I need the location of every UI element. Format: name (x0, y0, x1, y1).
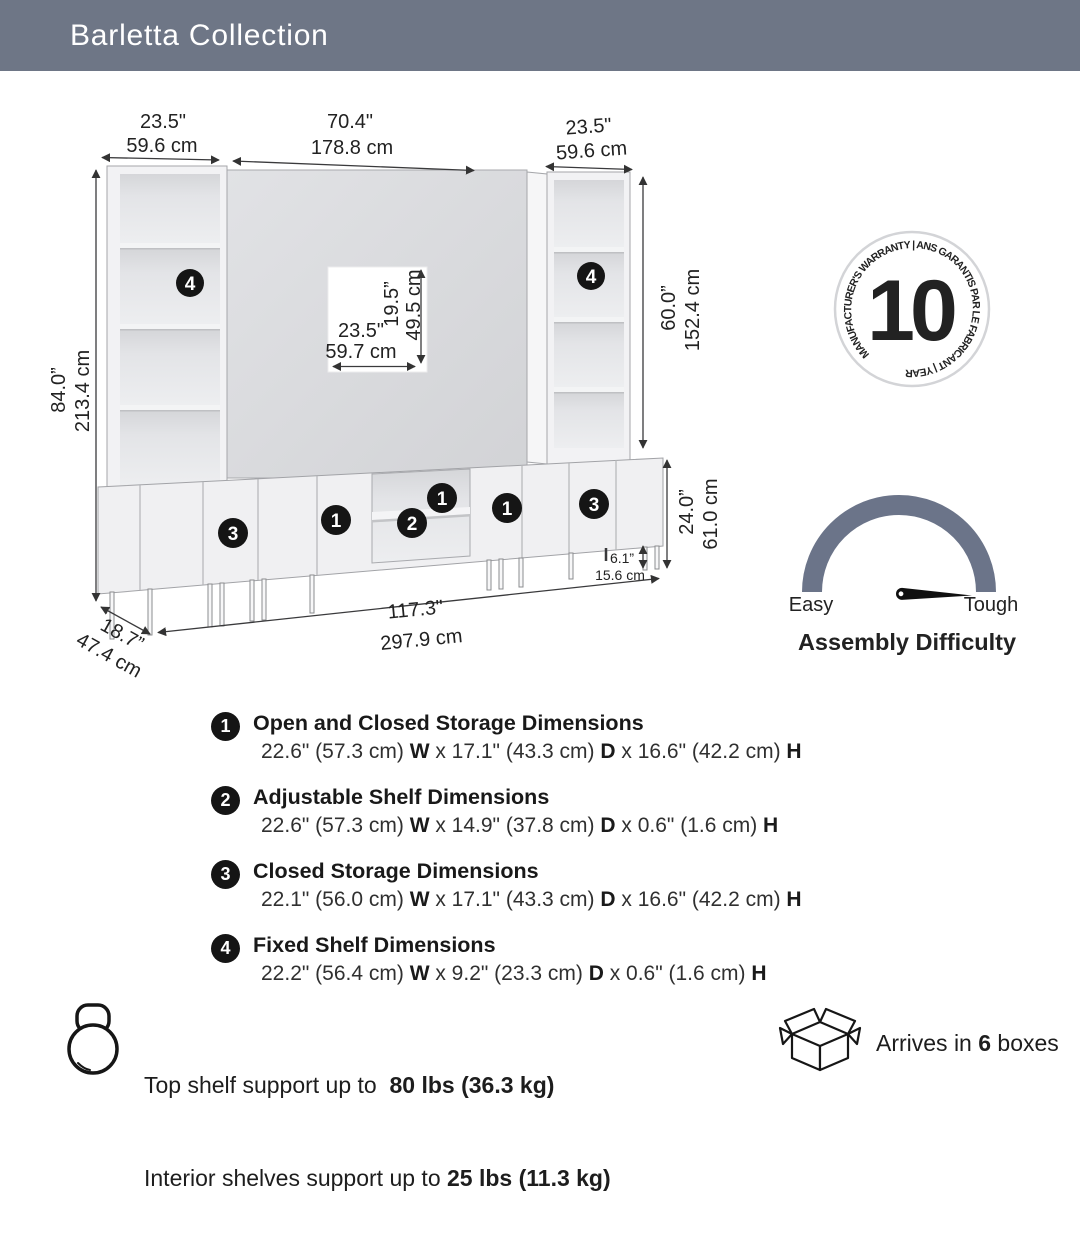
callout-badge-2-center: 2 (397, 508, 427, 538)
list-item: 1 Open and Closed Storage Dimensions 22.… (211, 710, 931, 765)
assembly-gauge: Easy Tough Assembly Difficulty (789, 505, 1018, 655)
callout-badge-4-left: 4 (176, 269, 204, 297)
warranty-years: 10 (867, 263, 955, 359)
dim-left-width-cm: 59.6 cm (126, 135, 197, 157)
svg-text:2: 2 (407, 514, 418, 535)
spec-list: 1 Open and Closed Storage Dimensions 22.… (211, 710, 931, 1006)
list-item: 4 Fixed Shelf Dimensions 22.2" (56.4 cm)… (211, 932, 931, 987)
dim-left-width-in: 23.5" (140, 111, 186, 133)
right-tower (527, 172, 630, 464)
list-item: 2 Adjustable Shelf Dimensions 22.6" (57.… (211, 784, 931, 839)
spec-badge-1: 1 (211, 712, 240, 741)
dim-total-width-cm: 297.9 cm (379, 625, 463, 655)
callout-badge-3-right: 3 (579, 489, 609, 519)
dim-tv-width-cm: 59.7 cm (325, 341, 396, 363)
spec-detail: 22.6" (57.3 cm) W x 17.1" (43.3 cm) D x … (253, 738, 802, 765)
svg-text:4: 4 (586, 267, 597, 288)
kettlebell-icon (60, 1001, 126, 1256)
box-icon (778, 1004, 862, 1077)
list-item: 3 Closed Storage Dimensions 22.1" (56.0 … (211, 858, 931, 913)
spec-title: Closed Storage Dimensions (253, 858, 802, 884)
callout-badge-1-right: 1 (492, 493, 522, 523)
callout-badge-1-left: 1 (321, 505, 351, 535)
gauge-arc (812, 505, 986, 592)
dim-console-height-cm: 61.0 cm (700, 478, 722, 549)
dim-total-height-cm: 213.4 cm (72, 350, 94, 432)
page-title: Barletta Collection (70, 0, 329, 71)
spec-title: Fixed Shelf Dimensions (253, 932, 767, 958)
dim-center-width-cm: 178.8 cm (311, 137, 393, 159)
dim-console-height-in: 24.0” (676, 489, 698, 535)
svg-text:3: 3 (589, 495, 600, 516)
dim-leg-height-in: 6.1” (610, 550, 634, 566)
dim-right-width-in: 23.5" (565, 114, 612, 139)
weight-capacity-note: Top shelf support up to 80 lbs (36.3 kg)… (60, 1001, 611, 1256)
interior-shelf-support-line: Interior shelves support up to 25 lbs (1… (144, 1163, 611, 1194)
top-shelf-support-line: Top shelf support up to 80 lbs (36.3 kg) (144, 1070, 611, 1101)
svg-text:1: 1 (437, 489, 448, 510)
spec-detail: 22.6" (57.3 cm) W x 14.9" (37.8 cm) D x … (253, 812, 778, 839)
dim-left-width-arrow (102, 158, 219, 161)
warranty-badge: MANUFACTURER'S WARRANTY | ANS GARANTIS P… (835, 232, 989, 386)
spec-badge-2: 2 (211, 786, 240, 815)
gauge-easy-label: Easy (789, 594, 833, 616)
dim-right-tower-height-in: 60.0” (658, 285, 680, 331)
spec-badge-4: 4 (211, 934, 240, 963)
svg-text:3: 3 (228, 524, 239, 545)
right-tower-shelf-cells (554, 180, 624, 448)
gauge-tough-label: Tough (964, 594, 1019, 616)
spec-detail: 22.1" (56.0 cm) W x 17.1" (43.3 cm) D x … (253, 886, 802, 913)
dim-total-height-in: 84.0” (48, 367, 70, 413)
spec-title: Open and Closed Storage Dimensions (253, 710, 802, 736)
dim-right-width-cm: 59.6 cm (555, 138, 628, 165)
dim-total-width-in: 117.3" (387, 596, 445, 623)
callout-badge-1-center: 1 (427, 483, 457, 513)
spec-badge-3: 3 (211, 860, 240, 889)
callout-badge-3-left: 3 (218, 518, 248, 548)
header-bar: Barletta Collection (0, 0, 1080, 71)
dim-center-width-arrow (233, 161, 474, 171)
dim-leg-height-cm: 15.6 cm (595, 567, 645, 583)
dim-tv-height-in: 19.5” (381, 281, 403, 327)
gauge-title: Assembly Difficulty (798, 629, 1016, 655)
gauge-needle (896, 588, 972, 602)
dim-tv-width-in: 23.5" (338, 320, 384, 342)
arrives-in-boxes-line: Arrives in 6 boxes (876, 1024, 1059, 1057)
box-count-note: Arrives in 6 boxes (778, 1004, 1059, 1077)
svg-text:1: 1 (502, 499, 513, 520)
left-tower-shelf-cells (120, 174, 220, 486)
dim-right-tower-height-cm: 152.4 cm (682, 269, 704, 351)
svg-text:1: 1 (331, 511, 342, 532)
spec-detail: 22.2" (56.4 cm) W x 9.2" (23.3 cm) D x 0… (253, 960, 767, 987)
dim-right-width-arrow (546, 167, 632, 170)
spec-title: Adjustable Shelf Dimensions (253, 784, 778, 810)
callout-badge-4-right: 4 (577, 262, 605, 290)
svg-text:4: 4 (185, 274, 196, 295)
left-tower (107, 166, 227, 490)
product-diagram: 4 4 3 1 1 2 1 3 (0, 80, 1080, 680)
dim-tv-height-cm: 49.5 cm (403, 269, 425, 340)
dim-center-width-in: 70.4" (327, 111, 373, 133)
